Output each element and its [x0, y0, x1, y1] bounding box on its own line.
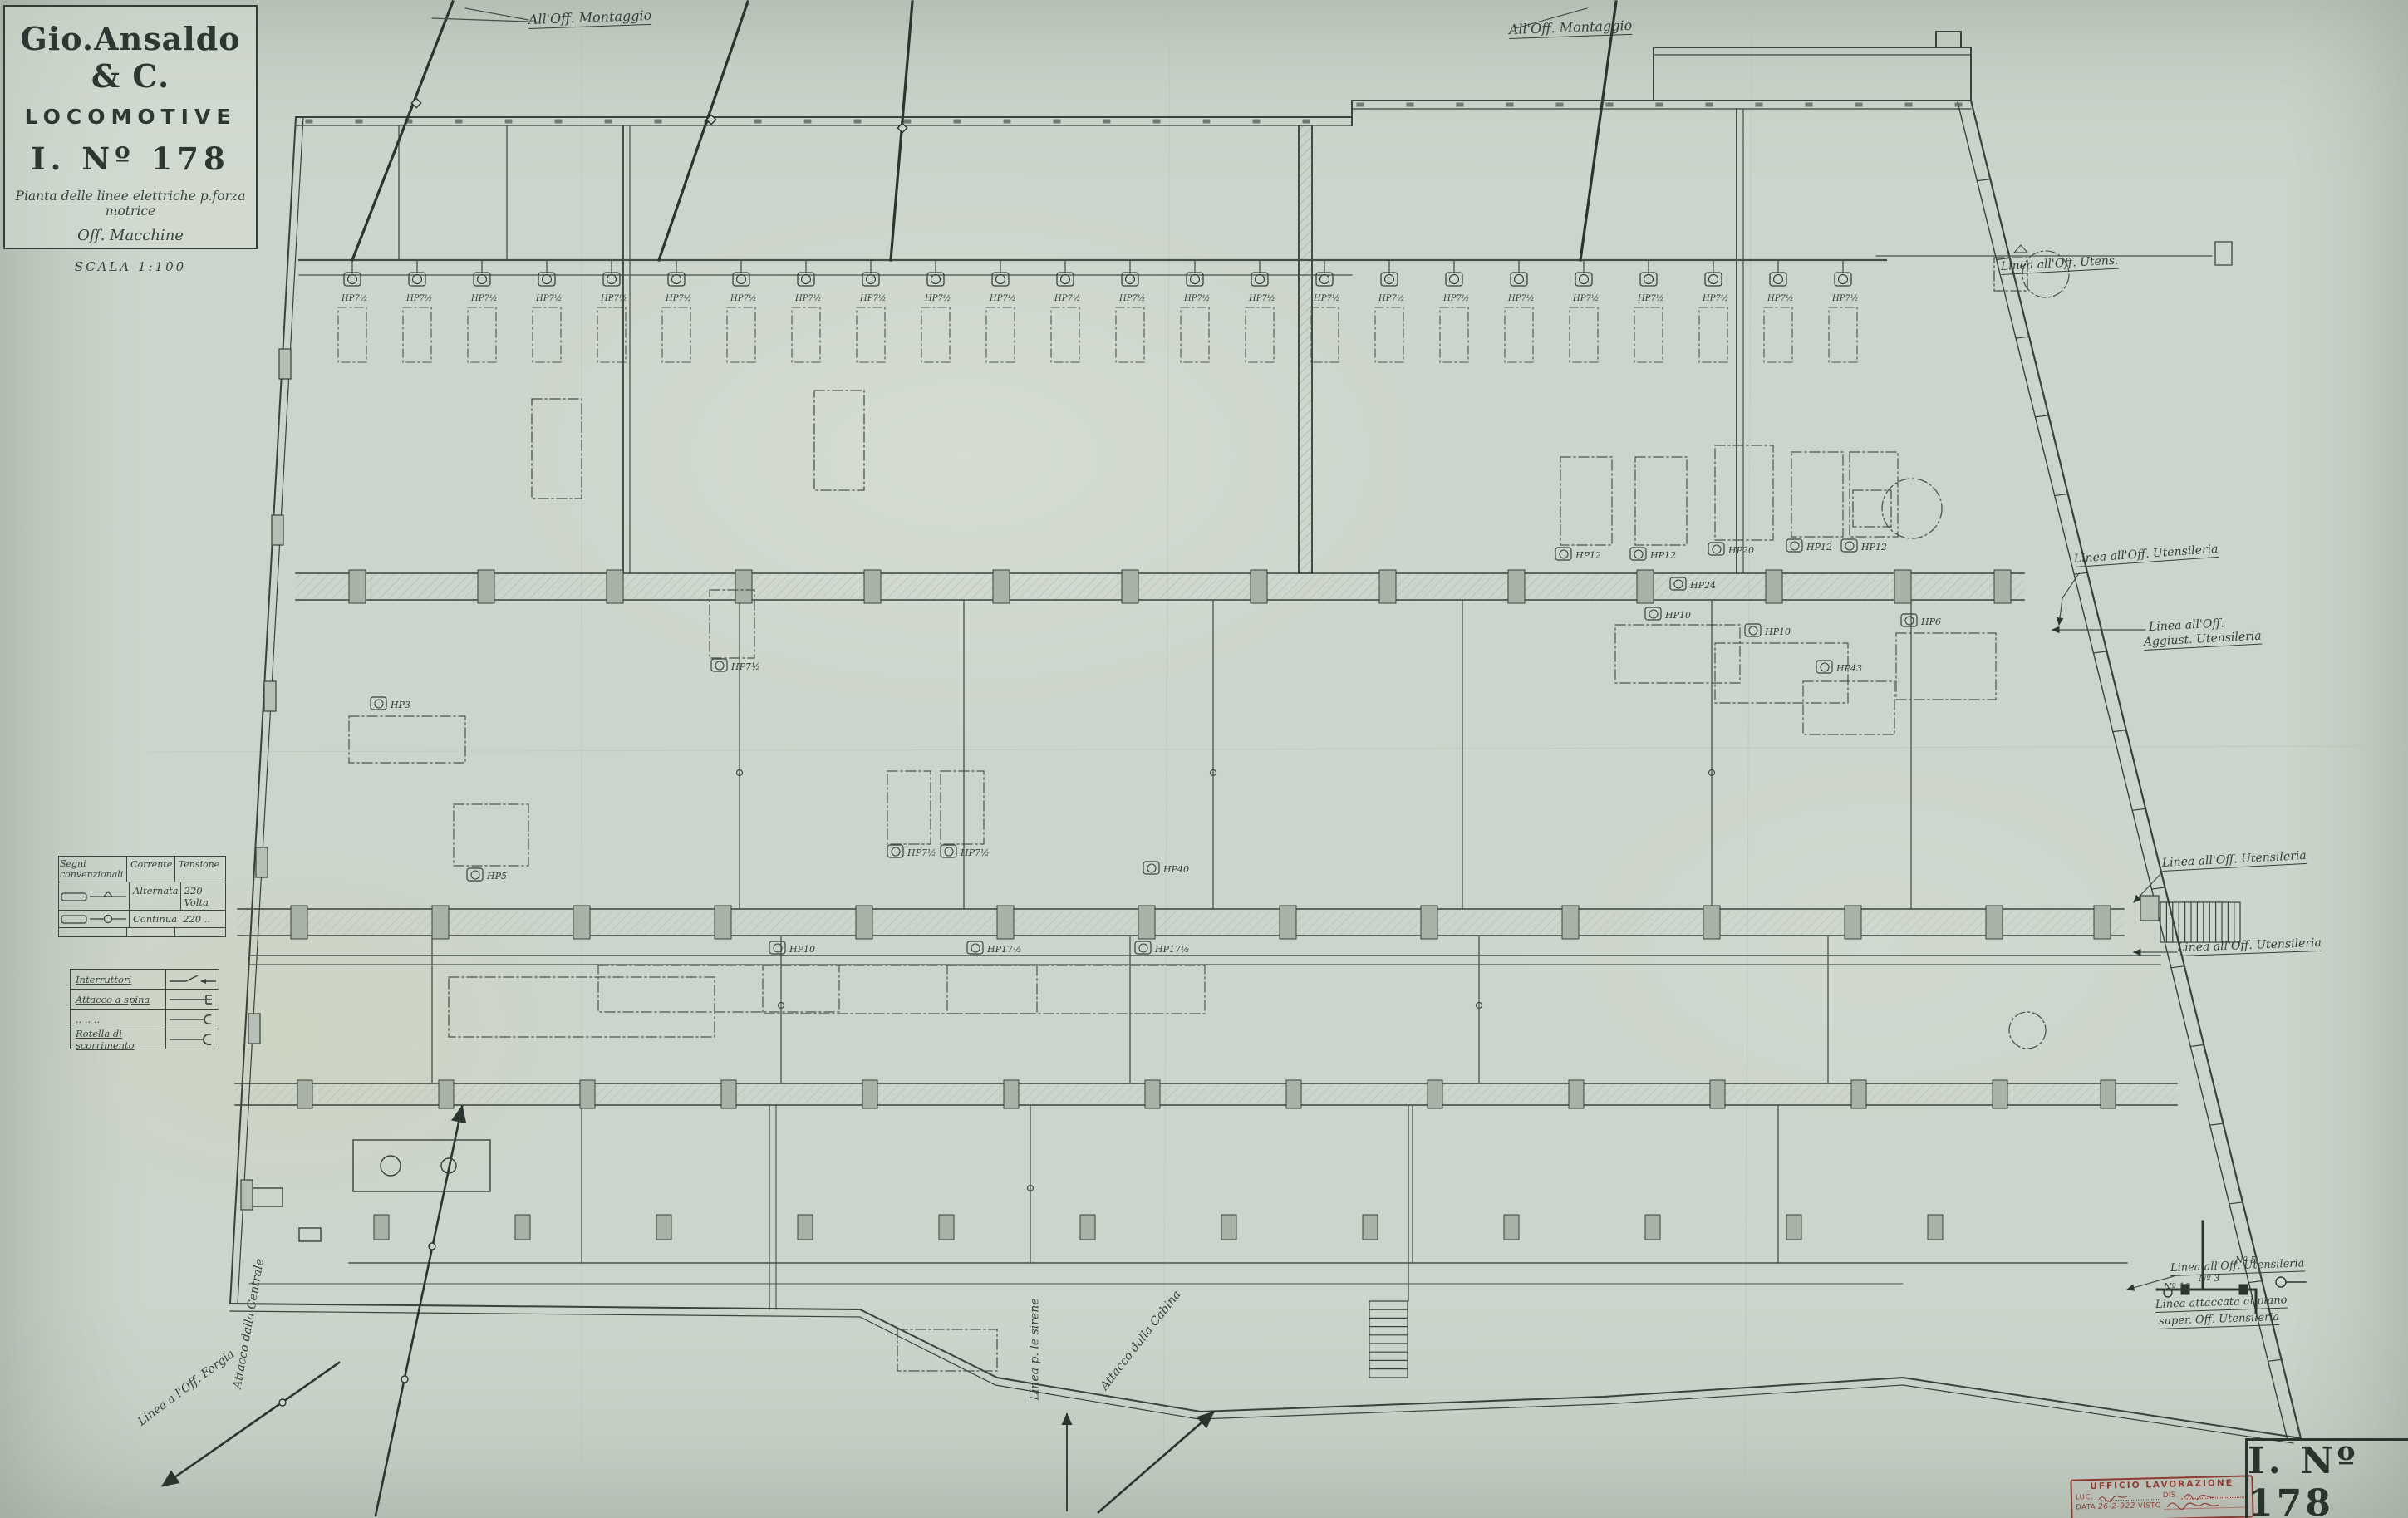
- svg-text:HP12: HP12: [1860, 542, 1887, 553]
- feeder-cables: [163, 2, 2306, 1516]
- interior-vertical-walls: [399, 109, 1743, 1309]
- svg-text:HP12: HP12: [1575, 550, 1601, 561]
- svg-text:HP7½: HP7½: [470, 294, 498, 303]
- legend-label-rotella: Rotella di scorrimento: [71, 1029, 166, 1049]
- faint-guides: [150, 0, 2408, 1518]
- plan-annotation: Linea p. le sirene: [1030, 1298, 1042, 1400]
- office-stamp: UFFICIO LAVORAZIONE LUC. DIS. DATA 26-2-…: [2070, 1475, 2253, 1518]
- svg-text:HP24: HP24: [1689, 580, 1716, 591]
- corridor-walls: [235, 573, 2177, 1105]
- legend-symbols-table: Interruttori Attacco a spina .. .. ..: [70, 969, 219, 1049]
- signature-scribble: [2096, 1491, 2160, 1501]
- signature-scribble: [2181, 1489, 2246, 1500]
- svg-text:HP7½: HP7½: [1637, 294, 1664, 303]
- stamp-luc-label: LUC.: [2076, 1493, 2093, 1502]
- stamp-dis-label: DIS.: [2163, 1491, 2179, 1500]
- svg-text:HP7½: HP7½: [924, 294, 951, 303]
- svg-text:HP12: HP12: [1806, 542, 1832, 553]
- rampart-rungs: [1977, 179, 2281, 1362]
- svg-text:HP17½: HP17½: [986, 944, 1022, 955]
- svg-text:HP7½: HP7½: [859, 294, 887, 303]
- plug-symbol: [168, 994, 218, 1005]
- department-name: Off. Macchine: [5, 227, 256, 244]
- legend-row-corrente: Alternata: [130, 882, 181, 910]
- forge-area-machines: [249, 1140, 490, 1241]
- svg-text:HP20: HP20: [1727, 545, 1754, 556]
- alternata-line-symbol: [60, 890, 128, 903]
- svg-text:HP7½: HP7½: [341, 294, 368, 303]
- svg-text:HP10: HP10: [789, 944, 815, 955]
- svg-text:HP7½: HP7½: [1442, 294, 1470, 303]
- svg-text:HP7½: HP7½: [1183, 294, 1211, 303]
- svg-text:HP17½: HP17½: [1154, 944, 1190, 955]
- svg-text:HP40: HP40: [1162, 864, 1189, 875]
- company-name: Gio.Ansaldo & C.: [5, 20, 256, 95]
- staircase: [1369, 896, 2240, 1378]
- svg-text:HP10: HP10: [1764, 626, 1791, 637]
- sheet-number-bottom: I. Nº 178: [2248, 1440, 2408, 1518]
- legend-row-tensione: 220 Volta: [181, 882, 225, 910]
- svg-text:HP7½: HP7½: [794, 294, 822, 303]
- legend-header-corrente: Corrente: [127, 857, 175, 882]
- building-outline: [230, 32, 2301, 1443]
- svg-text:HP7½: HP7½: [1248, 294, 1275, 303]
- stamp-data-label: DATA: [2076, 1503, 2096, 1512]
- svg-text:HP7½: HP7½: [730, 294, 757, 303]
- svg-text:HP7½: HP7½: [1313, 294, 1340, 303]
- svg-text:HP7½: HP7½: [989, 294, 1016, 303]
- legend-row-tensione: 220 ..: [179, 911, 225, 927]
- plug-symbol-2: [168, 1014, 218, 1025]
- svg-text:HP10: HP10: [1664, 610, 1691, 621]
- svg-text:HP7½: HP7½: [1572, 294, 1600, 303]
- legend-current-table: Segni convenzionali Corrente Tensione Al…: [58, 856, 226, 937]
- legend-header-symbols: Segni convenzionali: [59, 857, 127, 882]
- svg-text:HP7½: HP7½: [1378, 294, 1405, 303]
- division-name: LOCOMOTIVE: [5, 105, 256, 129]
- svg-text:HP7½: HP7½: [1507, 294, 1535, 303]
- svg-text:HP3: HP3: [390, 700, 410, 710]
- drawing-subtitle: Pianta delle linee elettriche p.forza mo…: [5, 189, 256, 219]
- svg-text:HP7½: HP7½: [907, 847, 936, 858]
- floor-plan-drawing: HP7½HP7½HP7½HP7½HP7½HP7½HP7½HP7½HP7½HP7½…: [0, 0, 2408, 1518]
- legend-header-tensione: Tensione: [175, 857, 225, 882]
- svg-text:HP7½: HP7½: [1702, 294, 1729, 303]
- svg-text:HP7½: HP7½: [1054, 294, 1081, 303]
- svg-text:HP6: HP6: [1920, 617, 1941, 627]
- svg-text:HP43: HP43: [1835, 663, 1862, 674]
- svg-text:HP7½: HP7½: [535, 294, 563, 303]
- svg-text:HP7½: HP7½: [665, 294, 692, 303]
- legend-label-ditto: .. .. ..: [71, 1010, 166, 1029]
- distribution-bus-lines: [249, 260, 2160, 1284]
- trolley-symbol: [168, 1034, 218, 1045]
- legend-row-corrente: Continua: [130, 911, 179, 927]
- svg-text:HP7½: HP7½: [960, 847, 990, 858]
- legend-label-attacco-a-spina: Attacco a spina: [71, 990, 166, 1009]
- signature-scribble: [2164, 1499, 2246, 1510]
- svg-text:HP7½: HP7½: [1767, 294, 1794, 303]
- svg-text:HP7½: HP7½: [405, 294, 433, 303]
- svg-text:HP7½: HP7½: [600, 294, 627, 303]
- svg-text:HP12: HP12: [1649, 550, 1676, 561]
- switch-symbol: [168, 974, 218, 985]
- svg-text:HP7½: HP7½: [1118, 294, 1146, 303]
- continua-line-symbol: [60, 912, 128, 926]
- stamp-visto-label: VISTO: [2138, 1501, 2161, 1511]
- svg-text:Nº 10: Nº 10: [2163, 1281, 2190, 1292]
- legend-label-interruttori: Interruttori: [71, 970, 166, 989]
- svg-text:HP5: HP5: [486, 871, 507, 882]
- stamp-date-value: 26-2-922: [2098, 1502, 2135, 1511]
- svg-text:HP7½: HP7½: [730, 661, 760, 672]
- sheet-number: I. Nº 178: [5, 140, 256, 177]
- sheet-number-box: I. Nº 178: [2245, 1438, 2408, 1518]
- drawing-scale: SCALA 1:100: [5, 259, 256, 274]
- title-block: Gio.Ansaldo & C. LOCOMOTIVE I. Nº 178 Pi…: [3, 5, 258, 249]
- drawing-sheet: HP7½HP7½HP7½HP7½HP7½HP7½HP7½HP7½HP7½HP7½…: [0, 0, 2408, 1518]
- wall-hatch-ticks: [307, 105, 1968, 121]
- svg-text:HP7½: HP7½: [1831, 294, 1859, 303]
- round-machine-outlines: [449, 251, 2069, 1371]
